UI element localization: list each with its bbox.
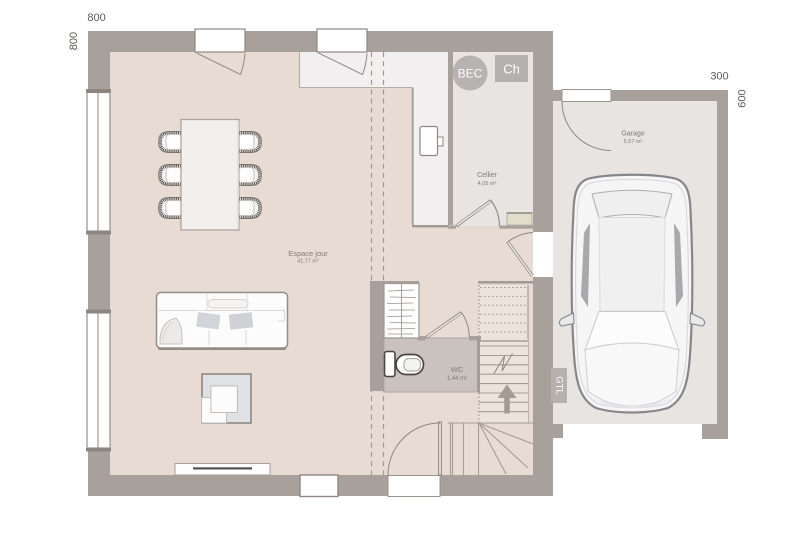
- svg-text:Garage: Garage: [621, 131, 644, 138]
- svg-text:1,44 m²: 1,44 m²: [447, 376, 467, 382]
- svg-text:WC: WC: [451, 365, 464, 374]
- svg-text:41,77 m²: 41,77 m²: [297, 259, 319, 265]
- svg-text:4,05 m²: 4,05 m²: [478, 181, 497, 187]
- svg-text:GTL: GTL: [554, 376, 565, 394]
- svg-text:600: 600: [737, 89, 749, 107]
- svg-text:800: 800: [87, 12, 105, 24]
- svg-text:BEC: BEC: [458, 67, 483, 81]
- svg-text:Espace jour: Espace jour: [288, 249, 328, 258]
- svg-text:Cellier: Cellier: [477, 172, 498, 179]
- svg-text:Ch: Ch: [503, 62, 520, 77]
- svg-text:300: 300: [710, 71, 728, 83]
- svg-text:5,57 m²: 5,57 m²: [624, 139, 643, 145]
- svg-text:800: 800: [68, 32, 80, 50]
